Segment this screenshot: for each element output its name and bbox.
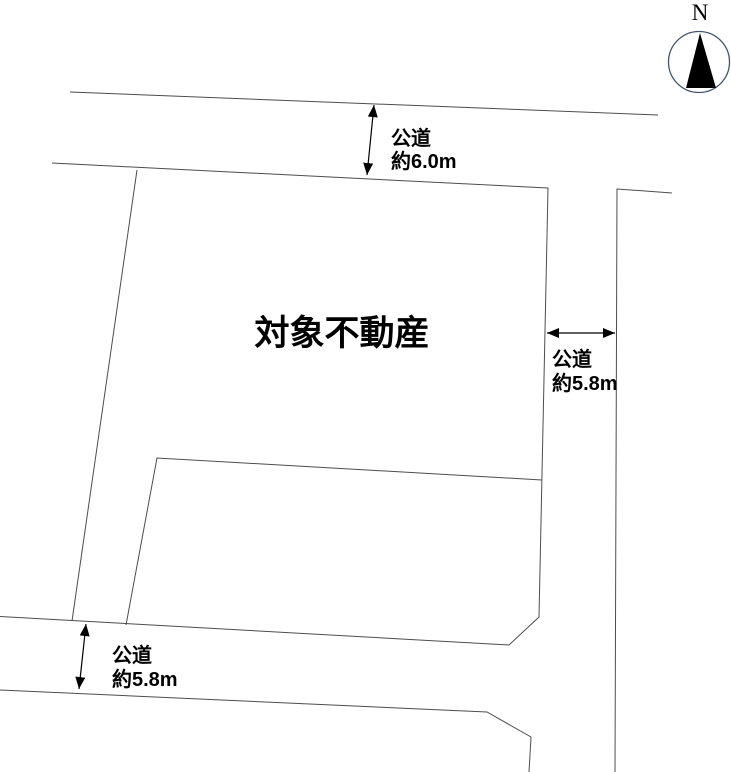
target-property-label: 対象不動産 [254, 314, 429, 353]
south-road-width-label: 約5.8m [112, 667, 178, 691]
east-road-name-label: 公道 [552, 347, 592, 371]
plot-north-east-south-boundary [0, 163, 548, 645]
north-road-upper-edge [70, 92, 658, 115]
site-plan-diagram: 公道 約6.0m 公道 約5.8m 公道 約5.8m 対象不動産 N [0, 0, 731, 772]
north-road-width-label: 約6.0m [391, 149, 457, 173]
dimension-arrows [79, 105, 615, 689]
south-road-width-arrow [79, 624, 86, 689]
site-plan-canvas: 公道 約6.0m 公道 約5.8m 公道 約5.8m 対象不動産 N [0, 0, 731, 772]
north-road-name-label: 公道 [391, 126, 431, 150]
south-road-name-label: 公道 [112, 643, 152, 667]
east-road-width-label: 約5.8m [552, 371, 618, 395]
compass-needle-icon [686, 33, 716, 88]
north-road-width-arrow [367, 105, 374, 175]
dimension-labels: 公道 約6.0m 公道 約5.8m 公道 約5.8m [112, 126, 618, 691]
compass: N [669, 0, 730, 93]
compass-north-letter: N [692, 0, 709, 25]
plot-west-boundary [72, 170, 137, 621]
boundary-lines [0, 92, 672, 772]
south-road-lower-edge [0, 690, 531, 772]
east-road-east-edge [615, 189, 672, 772]
inner-parcel-boundary [126, 458, 542, 625]
